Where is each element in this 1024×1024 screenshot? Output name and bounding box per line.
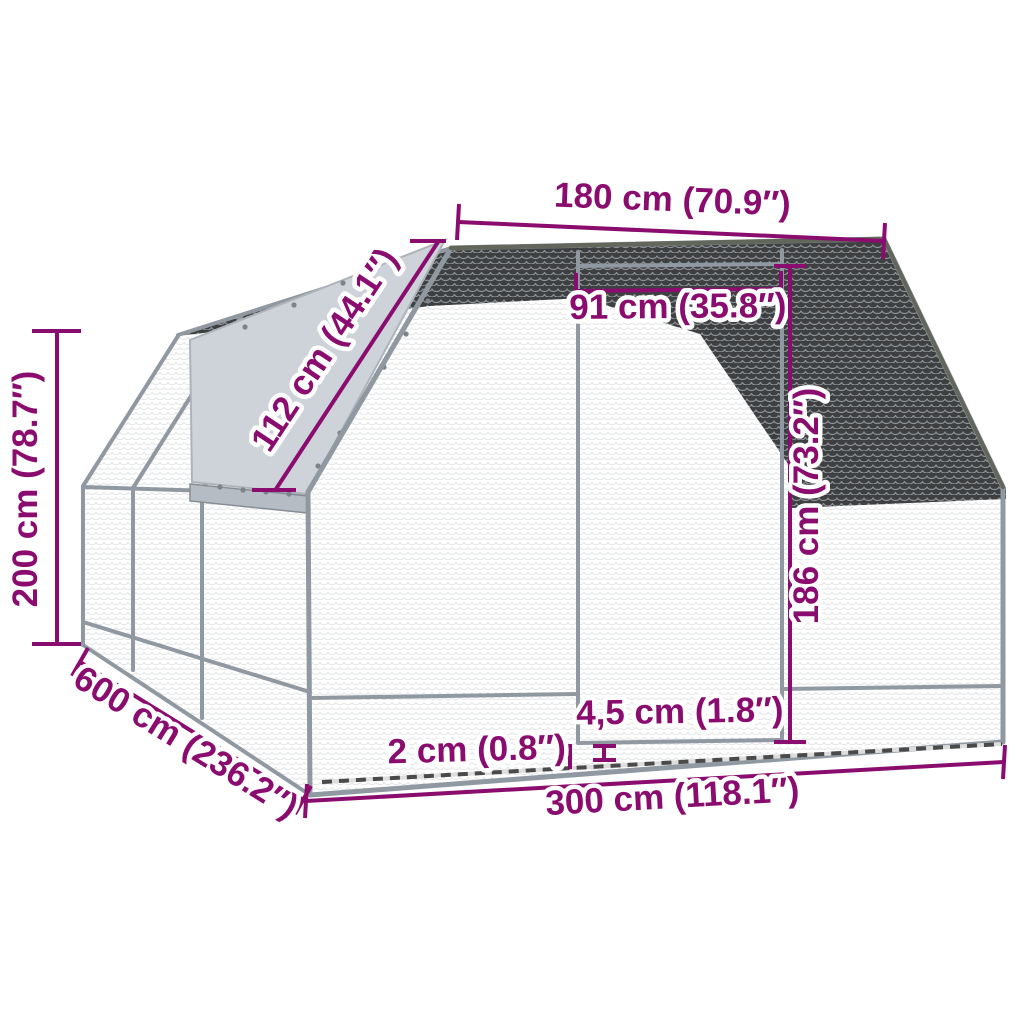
door-top-bar [578, 264, 782, 266]
chicken-cage-dimension-diagram: 180 cm (70.9″) 91 cm (35.8″) 112 cm (44.… [0, 0, 1024, 1024]
dimension-label-door-width: 91 cm (35.8″) [569, 286, 787, 327]
dimension-label-door-height: 186 cm (73.2″) [787, 388, 826, 625]
product-diagram-page: 180 cm (70.9″) 91 cm (35.8″) 112 cm (44.… [0, 0, 1024, 1024]
dimension-label-bottom-gap: 4,5 cm (1.8″) [576, 690, 784, 733]
dimension-frame-gap: 2 cm (0.8″) [387, 728, 570, 772]
dimension-label-height: 200 cm (78.7″) [6, 371, 45, 608]
dimension-label-frame-gap: 2 cm (0.8″) [387, 728, 566, 772]
